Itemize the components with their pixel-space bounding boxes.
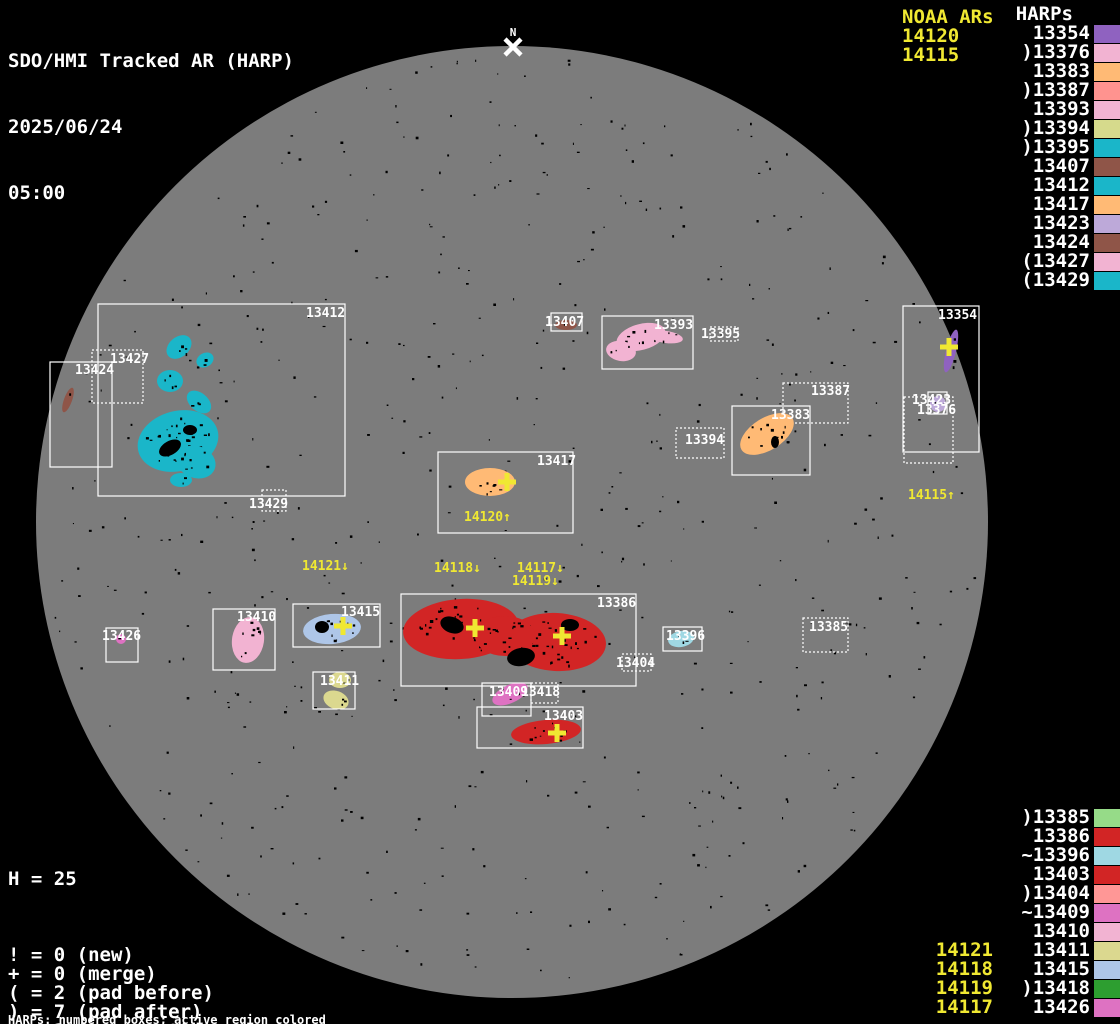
noaa-ar-number: 14115	[902, 46, 994, 65]
sdo-hmi-harp-view: 1341213424134271342913407133931339513387…	[0, 0, 1120, 1024]
harp-count: H = 25	[8, 870, 225, 889]
noaa-ars-list-top: 1412014115	[902, 27, 994, 65]
harp-color-swatch	[1094, 25, 1120, 43]
noaa-shifted-label: 14119↓	[512, 574, 559, 589]
harp-box-label-13403: 13403	[544, 709, 583, 724]
sunspot-core	[315, 621, 329, 633]
harp-color-swatch	[1094, 904, 1120, 922]
harp-color-swatch	[1094, 234, 1120, 252]
harp-color-swatch	[1094, 253, 1120, 271]
harp-color-swatch	[1094, 980, 1120, 998]
app-title: SDO/HMI Tracked AR (HARP)	[8, 50, 294, 72]
harp-region-13407: 13407	[545, 313, 584, 331]
harp-box-label-13395: 13395	[701, 327, 740, 342]
harp-box-label-13354: 13354	[938, 308, 977, 323]
harp-box-label-13410: 13410	[237, 610, 276, 625]
harp-color-swatch	[1094, 923, 1120, 941]
harp-color-swatch	[1094, 101, 1120, 119]
harp-box-label-13426: 13426	[102, 629, 141, 644]
harp-color-swatch	[1094, 942, 1120, 960]
harp-color-swatch	[1094, 809, 1120, 827]
harp-color-swatch	[1094, 847, 1120, 865]
harp-box-label-13396: 13396	[666, 629, 705, 644]
footnotes: HARPs: numbered boxes; active region col…	[8, 988, 427, 1024]
harp-legend-number: (13429	[1014, 271, 1090, 290]
noaa-ars-legend-top: NOAA ARs 1412014115	[902, 8, 994, 65]
harp-color-swatch	[1094, 63, 1120, 81]
harp-box-label-13417: 13417	[537, 454, 576, 469]
active-region-blob	[157, 370, 183, 392]
active-region-blob	[170, 473, 192, 487]
harp-box-label-13383: 13383	[771, 408, 810, 423]
noaa-shifted-label: 14118↓	[434, 561, 481, 576]
harp-color-swatch	[1094, 120, 1120, 138]
harp-color-swatch	[1094, 215, 1120, 233]
noaa-shifted-label: 14121↓	[302, 559, 349, 574]
harp-box-label-13427: 13427	[110, 352, 149, 367]
noaa-shifted-label: 14115↑	[908, 488, 955, 503]
harp-box-label-13407: 13407	[545, 315, 584, 330]
noaa-shifted-label: 14120↑	[464, 510, 511, 525]
harp-color-swatch	[1094, 866, 1120, 884]
harp-box-label-13418: 13418	[521, 685, 560, 700]
harp-color-swatch	[1094, 139, 1120, 157]
harp-legend-row: 13426	[1014, 998, 1120, 1017]
harp-legend-number: 13426	[1014, 998, 1090, 1017]
harps-legend-bottom: )1338513386~1339613403)13404~13409134101…	[1014, 808, 1120, 1017]
harp-color-swatch	[1094, 44, 1120, 62]
sunspot-core	[183, 425, 197, 435]
harp-box-label-13376: 13376	[917, 403, 956, 418]
harp-color-swatch	[1094, 82, 1120, 100]
noaa-ars-legend-bottom: 14121141181411914117	[935, 941, 993, 1017]
harp-color-swatch	[1094, 177, 1120, 195]
title-block: SDO/HMI Tracked AR (HARP) 2025/06/24 05:…	[8, 6, 294, 248]
harp-color-swatch	[1094, 196, 1120, 214]
harp-box-label-13387: 13387	[811, 384, 850, 399]
time-label: 05:00	[8, 182, 294, 204]
harp-box-label-13412: 13412	[306, 306, 345, 321]
harp-box-label-13429: 13429	[249, 497, 288, 512]
harp-color-swatch	[1094, 158, 1120, 176]
harp-color-swatch	[1094, 961, 1120, 979]
north-label: N	[510, 26, 517, 39]
harps-list-top: 13354)1337613383)1338713393)13394)133951…	[1014, 24, 1120, 290]
harp-color-swatch	[1094, 885, 1120, 903]
harp-region-13395: 13395	[701, 327, 740, 342]
harp-legend-row: (13429	[1014, 271, 1120, 290]
harps-list-bottom: )1338513386~1339613403)13404~13409134101…	[1014, 808, 1120, 1017]
harp-box-label-13411: 13411	[320, 674, 359, 689]
harp-box-label-13393: 13393	[654, 318, 693, 333]
harp-box-label-13415: 13415	[341, 605, 380, 620]
harp-box-label-13394: 13394	[685, 433, 724, 448]
footnote-harps: HARPs: numbered boxes; active region col…	[8, 1014, 427, 1024]
harps-legend-top: HARPs 13354)1337613383)1338713393)13394)…	[1014, 5, 1120, 290]
noaa-ar-number: 14117	[935, 998, 993, 1017]
date-label: 2025/06/24	[8, 116, 294, 138]
harp-color-swatch	[1094, 828, 1120, 846]
noaa-ars-list-bottom: 14121141181411914117	[935, 941, 993, 1017]
harp-box-label-13386: 13386	[597, 596, 636, 611]
harp-box-label-13424: 13424	[75, 363, 114, 378]
harp-color-swatch	[1094, 272, 1120, 290]
harp-color-swatch	[1094, 999, 1120, 1017]
harp-box-label-13404: 13404	[616, 656, 655, 671]
sunspot-core	[771, 436, 779, 448]
harp-region-13404: 13404	[616, 654, 655, 671]
harp-box-label-13385: 13385	[809, 620, 848, 635]
